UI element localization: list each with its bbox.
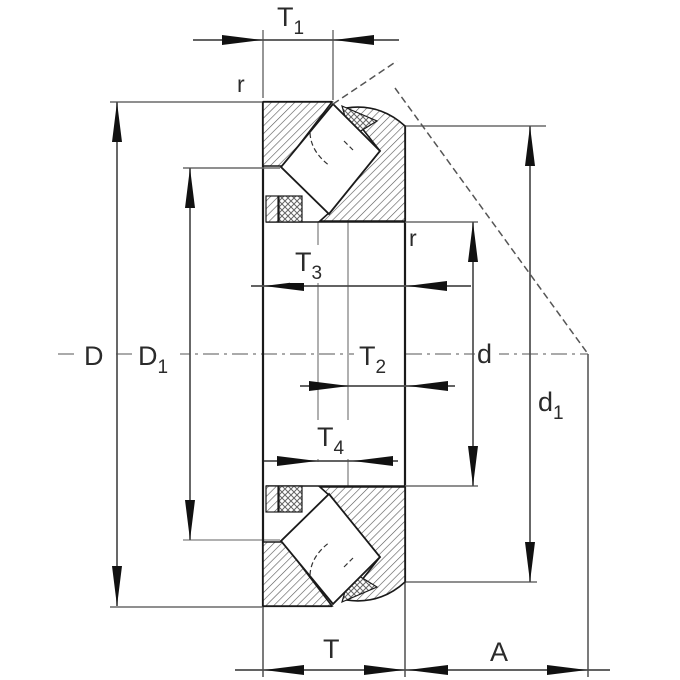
guide-sleeve-lower <box>266 486 278 512</box>
label-D: D <box>84 341 104 371</box>
bearing-cross-section-svg: T1 r r T3 T2 T4 D D1 d d1 T A <box>0 0 680 680</box>
label-r-top: r <box>237 71 245 97</box>
label-d: d <box>477 339 492 369</box>
cage-rail-lower <box>279 486 302 512</box>
label-A: A <box>490 637 508 667</box>
label-T: T <box>323 634 340 664</box>
guide-sleeve-upper <box>266 196 278 222</box>
cage-rail-upper <box>279 196 302 222</box>
label-r-inner: r <box>409 225 417 251</box>
bearing-drawing-canvas: T1 r r T3 T2 T4 D D1 d d1 T A <box>0 0 680 680</box>
